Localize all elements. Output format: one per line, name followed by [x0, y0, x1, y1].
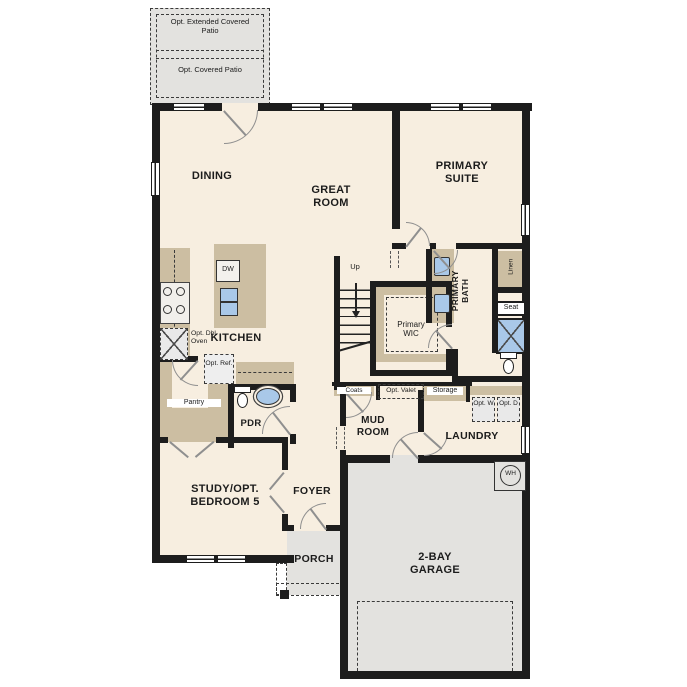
room-label-study: STUDY/OPT. BEDROOM 5 — [165, 483, 285, 508]
feature-label-seat: Seat — [498, 304, 524, 312]
wall — [326, 525, 344, 531]
wall — [152, 437, 168, 443]
burner-icon — [163, 305, 172, 314]
opt-double-oven-box — [160, 328, 188, 360]
room-label-primary-suite: PRIMARY SUITE — [424, 160, 500, 185]
shower-icon — [496, 318, 526, 354]
feature-label-dw: DW — [216, 266, 240, 274]
window — [521, 426, 530, 454]
patio-divider — [156, 50, 264, 51]
wall — [370, 281, 452, 287]
burner-icon — [163, 287, 172, 296]
bath-sink-icon — [434, 294, 450, 313]
wall — [340, 455, 348, 679]
window — [186, 555, 215, 563]
pdr-sink-icon — [256, 388, 280, 405]
cased-opening — [390, 251, 399, 268]
wall — [392, 103, 400, 229]
wall — [340, 671, 530, 679]
wall — [452, 349, 458, 376]
window — [323, 103, 353, 111]
room-label-laundry: LAUNDRY — [432, 430, 512, 442]
room-label-pdr: PDR — [234, 419, 268, 430]
feature-label-coats: Coats — [337, 387, 371, 394]
room-label-great-room: GREAT ROOM — [300, 184, 362, 209]
wall — [492, 287, 528, 293]
opt-covered-patio-label: Opt. Covered Patio — [160, 66, 260, 75]
room-label-primary-wic: Primary WIC — [389, 320, 433, 338]
window — [291, 103, 321, 111]
wall — [466, 384, 470, 402]
feature-label-opt-w: Opt. W — [472, 400, 495, 407]
garage-door-outline — [357, 601, 513, 671]
window — [521, 204, 530, 236]
counter-dashed-line — [238, 372, 292, 373]
stairs-arrow-head — [352, 311, 360, 318]
wall — [522, 103, 530, 679]
room-label-pantry: Pantry — [167, 399, 221, 407]
window — [462, 103, 492, 111]
feature-label-opt-ref: Opt. Ref. — [204, 360, 234, 368]
window — [173, 103, 205, 111]
opt-ref-box — [204, 354, 234, 384]
wall — [216, 437, 288, 443]
feature-label-opt-d: Opt. D — [497, 400, 520, 407]
sink-divider — [221, 301, 237, 303]
room-label-primary-bath: PRIMARY BATH — [451, 261, 471, 321]
feature-label-storage: Storage — [427, 387, 463, 395]
room-label-garage: 2-BAY GARAGE — [400, 551, 470, 576]
wall — [446, 349, 452, 376]
window — [217, 555, 246, 563]
window — [430, 103, 460, 111]
floor-plan: Opt. Extended Covered Patio Opt. Covered… — [0, 0, 687, 687]
wall — [282, 525, 294, 531]
cased-opening — [336, 427, 345, 449]
wall — [370, 281, 376, 376]
feature-label-up: Up — [340, 263, 370, 272]
feature-label-opt-valet: Opt. Valet — [379, 387, 423, 395]
room-label-mud-room: MUD ROOM — [347, 415, 399, 438]
wd-counter — [470, 386, 524, 395]
room-label-dining: DINING — [180, 170, 244, 183]
toilet-icon — [503, 359, 514, 374]
wall — [392, 243, 406, 249]
wall — [290, 384, 296, 402]
feature-label-linen: Linen — [507, 247, 514, 287]
window — [151, 162, 160, 196]
toilet-icon — [500, 352, 517, 359]
wall — [370, 370, 452, 376]
stairs-arrow — [355, 283, 357, 313]
wic-shelf — [376, 287, 384, 362]
opt-extended-patio-label: Opt. Extended Covered Patio — [170, 18, 250, 35]
burner-icon — [176, 287, 185, 296]
room-label-foyer: FOYER — [284, 485, 340, 497]
room-label-porch: PORCH — [286, 553, 342, 565]
toilet-icon — [234, 386, 251, 393]
feature-label-wh: WH — [500, 470, 521, 477]
opt-ref-counter — [236, 362, 294, 384]
feature-label-opt-oven: Opt. Dbl. Oven — [191, 330, 219, 346]
patio-divider — [156, 58, 264, 59]
burner-icon — [176, 305, 185, 314]
wall — [290, 434, 296, 444]
toilet-icon — [237, 393, 248, 408]
wall — [340, 450, 346, 460]
porch-post — [280, 590, 289, 599]
wic-shelf — [376, 354, 446, 362]
